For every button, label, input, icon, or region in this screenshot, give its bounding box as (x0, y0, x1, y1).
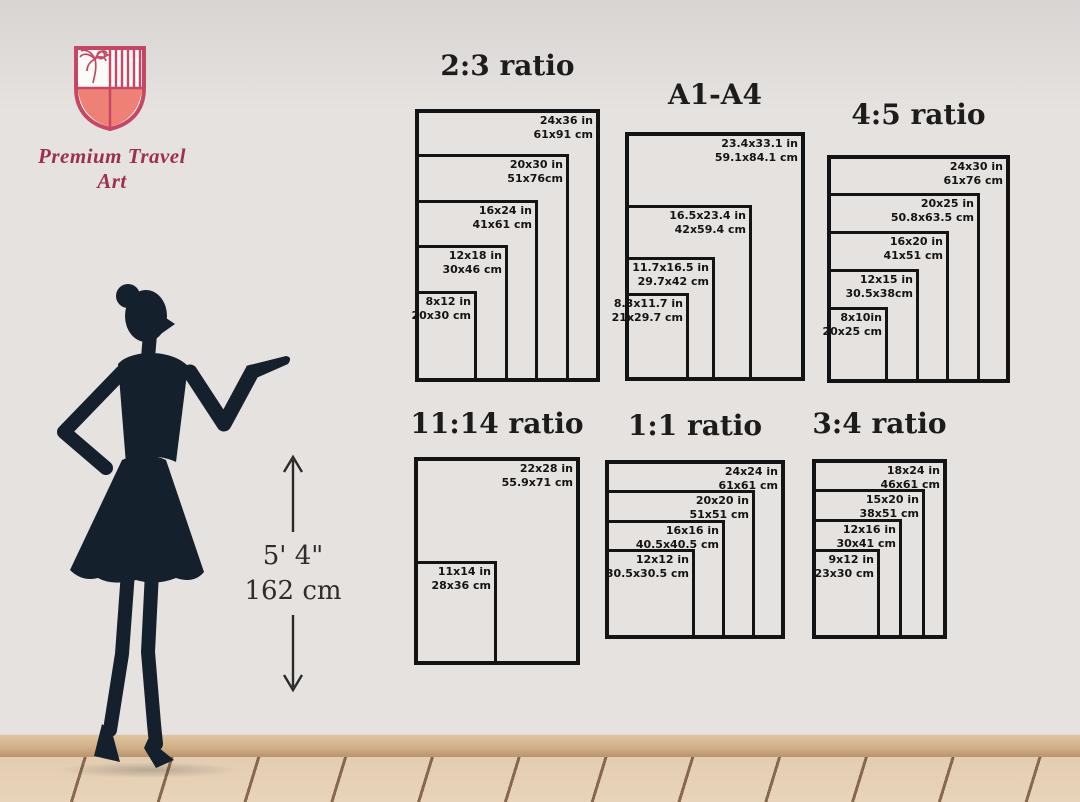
size-label-cm: 55.9x71 cm (502, 476, 573, 490)
diagram-boxes: 23.4x33.1 in59.1x84.1 cm16.5x23.4 in42x5… (625, 132, 805, 381)
size-label-inches: 15x20 in (859, 493, 919, 507)
arrow-down-icon (271, 613, 315, 695)
size-label-inches: 16.5x23.4 in (669, 209, 746, 223)
size-label: 11x14 in28x36 cm (431, 565, 491, 593)
size-label: 20x25 in50.8x63.5 cm (891, 197, 974, 225)
size-label-inches: 22x28 in (502, 462, 573, 476)
size-label-cm: 61x91 cm (533, 128, 593, 142)
size-label-inches: 20x25 in (891, 197, 974, 211)
size-label: 15x20 in38x51 cm (859, 493, 919, 521)
size-box: 12x12 in30.5x30.5 cm (605, 549, 695, 639)
diagram-title: 11:14 ratio (410, 407, 583, 441)
size-label-inches: 8x12 in (411, 295, 471, 309)
size-label-inches: 8.3x11.7 in (612, 297, 683, 311)
size-label-inches: 24x30 in (943, 160, 1003, 174)
diagram-boxes: 22x28 in55.9x71 cm11x14 in28x36 cm (414, 457, 580, 665)
size-label-inches: 20x30 in (507, 158, 563, 172)
diagram-boxes: 24x24 in61x61 cm20x20 in51x51 cm16x16 in… (605, 460, 785, 639)
size-label: 22x28 in55.9x71 cm (502, 462, 573, 490)
size-label-inches: 16x24 in (472, 204, 532, 218)
height-reference: 5' 4" 162 cm (237, 452, 349, 695)
size-label-inches: 8x10in (822, 311, 882, 325)
size-label-cm: 21x29.7 cm (612, 311, 683, 325)
diagram-title: 3:4 ratio (812, 407, 946, 441)
size-label-inches: 12x12 in (606, 553, 689, 567)
size-box: 9x12 in23x30 cm (812, 549, 880, 639)
height-cm-label: 162 cm (244, 575, 341, 608)
shield-icon (70, 44, 150, 132)
size-label-inches: 12x18 in (442, 249, 502, 263)
size-label: 12x12 in30.5x30.5 cm (606, 553, 689, 581)
size-label-inches: 18x24 in (880, 464, 940, 478)
size-label-cm: 61x76 cm (943, 174, 1003, 188)
size-label-cm: 23x30 cm (814, 567, 874, 581)
size-label: 16x24 in41x61 cm (472, 204, 532, 232)
diagram-title: 1:1 ratio (628, 409, 762, 443)
size-label: 16x20 in41x51 cm (883, 235, 943, 263)
size-label-cm: 29.7x42 cm (632, 275, 709, 289)
size-label-cm: 59.1x84.1 cm (715, 151, 798, 165)
size-label-inches: 12x16 in (836, 523, 896, 537)
size-label-inches: 24x24 in (718, 465, 778, 479)
size-diagram-4-5-ratio: 4:5 ratio 24x30 in61x76 cm20x25 in50.8x6… (827, 155, 1010, 383)
brand-name: Premium Travel Art (24, 144, 200, 194)
size-label: 20x20 in51x51 cm (689, 494, 749, 522)
size-label-cm: 20x25 cm (822, 325, 882, 339)
size-label: 12x15 in30.5x38cm (845, 273, 913, 301)
diagram-boxes: 24x36 in61x91 cm20x30 in51x76cm16x24 in4… (415, 109, 600, 382)
size-label: 18x24 in46x61 cm (880, 464, 940, 492)
size-label: 23.4x33.1 in59.1x84.1 cm (715, 137, 798, 165)
size-box: 11x14 in28x36 cm (414, 561, 497, 665)
size-label: 8x10in20x25 cm (822, 311, 882, 339)
size-label: 16.5x23.4 in42x59.4 cm (669, 209, 746, 237)
diagram-boxes: 18x24 in46x61 cm15x20 in38x51 cm12x16 in… (812, 459, 947, 639)
diagram-title: 4:5 ratio (851, 98, 985, 132)
size-label-inches: 23.4x33.1 in (715, 137, 798, 151)
arrow-up-icon (271, 452, 315, 534)
size-label-cm: 41x51 cm (883, 249, 943, 263)
size-label-inches: 16x16 in (636, 524, 719, 538)
size-label-inches: 20x20 in (689, 494, 749, 508)
size-label: 24x30 in61x76 cm (943, 160, 1003, 188)
size-box: 8x10in20x25 cm (827, 307, 888, 383)
height-feet-label: 5' 4" (263, 540, 323, 573)
size-label-cm: 41x61 cm (472, 218, 532, 232)
size-label: 12x16 in30x41 cm (836, 523, 896, 551)
size-label-cm: 50.8x63.5 cm (891, 211, 974, 225)
size-label-cm: 30.5x38cm (845, 287, 913, 301)
size-label: 8.3x11.7 in21x29.7 cm (612, 297, 683, 325)
size-chart-poster: Premium Travel Art 5' 4" 162 cm (0, 0, 1080, 802)
size-label-cm: 28x36 cm (431, 579, 491, 593)
size-label: 11.7x16.5 in29.7x42 cm (632, 261, 709, 289)
size-label: 8x12 in20x30 cm (411, 295, 471, 323)
size-label: 9x12 in23x30 cm (814, 553, 874, 581)
size-box: 8.3x11.7 in21x29.7 cm (625, 293, 689, 381)
size-label-cm: 51x76cm (507, 172, 563, 186)
size-diagram-11-14-ratio: 11:14 ratio 22x28 in55.9x71 cm11x14 in28… (414, 457, 580, 665)
size-label-inches: 24x36 in (533, 114, 593, 128)
size-label: 24x36 in61x91 cm (533, 114, 593, 142)
size-diagram-a1-a4: A1-A4 23.4x33.1 in59.1x84.1 cm16.5x23.4 … (625, 132, 805, 381)
size-label: 24x24 in61x61 cm (718, 465, 778, 493)
size-label-cm: 30.5x30.5 cm (606, 567, 689, 581)
size-diagram-3-4-ratio: 3:4 ratio 18x24 in46x61 cm15x20 in38x51 … (812, 459, 947, 639)
size-label-inches: 16x20 in (883, 235, 943, 249)
size-label-inches: 11x14 in (431, 565, 491, 579)
size-label: 12x18 in30x46 cm (442, 249, 502, 277)
diagram-title: A1-A4 (668, 78, 762, 112)
size-label-cm: 42x59.4 cm (669, 223, 746, 237)
size-label-inches: 11.7x16.5 in (632, 261, 709, 275)
size-label-inches: 9x12 in (814, 553, 874, 567)
size-label: 20x30 in51x76cm (507, 158, 563, 186)
size-diagram-1-1-ratio: 1:1 ratio 24x24 in61x61 cm20x20 in51x51 … (605, 460, 785, 639)
size-box: 8x12 in20x30 cm (415, 291, 477, 382)
size-label-cm: 30x46 cm (442, 263, 502, 277)
size-label-inches: 12x15 in (845, 273, 913, 287)
diagram-boxes: 24x30 in61x76 cm20x25 in50.8x63.5 cm16x2… (827, 155, 1010, 383)
size-diagram-2-3-ratio: 2:3 ratio 24x36 in61x91 cm20x30 in51x76c… (415, 109, 600, 382)
size-label: 16x16 in40.5x40.5 cm (636, 524, 719, 552)
size-label-cm: 20x30 cm (411, 309, 471, 323)
diagram-title: 2:3 ratio (440, 49, 574, 83)
